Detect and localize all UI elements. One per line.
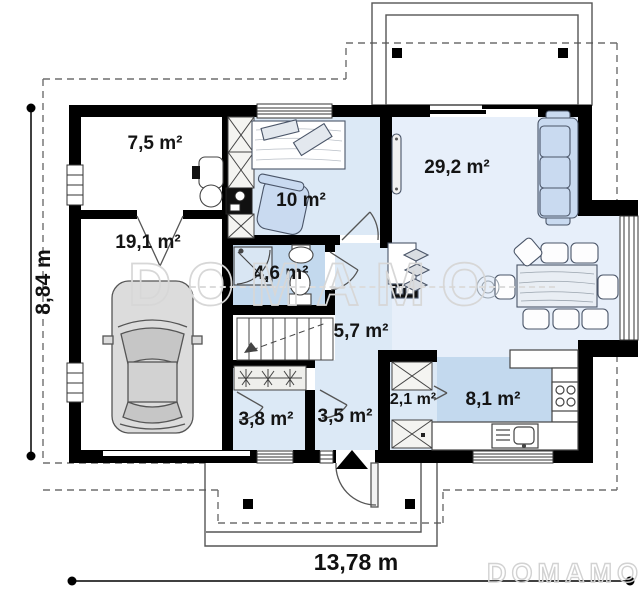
- window-utility-left: [67, 165, 83, 205]
- car-roof: [128, 362, 177, 402]
- firewood: [403, 249, 429, 291]
- dining-table: [517, 265, 597, 307]
- entrance-door: [336, 450, 378, 507]
- room-label-living: 29,2 m²: [424, 157, 489, 179]
- window-office-top: [257, 104, 332, 118]
- kitchen-sink: [492, 424, 538, 448]
- office-wardrobe: [228, 117, 254, 238]
- stairs: [237, 318, 333, 360]
- dimension-width-label: 13,78 m: [314, 549, 398, 576]
- boiler-unit-office: [226, 188, 252, 214]
- porch-posts: [243, 499, 415, 509]
- sofa: [538, 111, 578, 225]
- stove: [552, 382, 578, 411]
- hall-passage-floor: [315, 360, 378, 390]
- room-label-garage: 19,1 m²: [115, 232, 180, 254]
- room-label-hall: 5,7 m²: [334, 321, 389, 343]
- garage-door: [103, 451, 250, 456]
- kitchen-counter-top: [510, 350, 578, 368]
- hanger-closet: [234, 366, 306, 390]
- window-vestibule-bottom: [320, 451, 333, 463]
- car-mirror-right: [192, 336, 202, 344]
- room-label-wardrobe: 3,8 m²: [239, 409, 294, 431]
- window-garage-left: [67, 363, 83, 402]
- appliance-marker: [421, 433, 425, 437]
- terrace-posts: [392, 48, 568, 58]
- room-label-bathroom: 4,6 m²: [254, 263, 309, 285]
- car-mirror-left: [103, 336, 113, 344]
- room-label-office: 10 m²: [276, 190, 326, 212]
- room-label-pantry: 2,1 m²: [390, 391, 436, 409]
- entrance-arrow: [336, 450, 368, 469]
- window-kitchen-bottom: [473, 451, 553, 463]
- desk: [252, 120, 345, 169]
- radiator: [392, 134, 401, 194]
- terrace-sliding-door: [428, 105, 540, 114]
- room-label-kitchen: 8,1 m²: [466, 389, 521, 411]
- entry-porch: [205, 463, 437, 546]
- bathroom-sink: [289, 245, 313, 263]
- floor-plan: 7,5 m² 19,1 m² 10 m² 4,6 m² 29,2 m² 5,7 …: [0, 0, 640, 595]
- room-label-vestibule: 3,5 m²: [318, 406, 373, 428]
- window-bay-right: [620, 216, 638, 340]
- utility-boiler: [192, 157, 223, 207]
- dimension-height-label: 8,84 m: [32, 249, 56, 314]
- car-windshield: [121, 328, 184, 364]
- window-wardrobe-bottom: [257, 451, 293, 463]
- car: [103, 281, 202, 433]
- floor-plan-drawing: [0, 0, 640, 595]
- room-label-utility: 7,5 m²: [128, 133, 183, 155]
